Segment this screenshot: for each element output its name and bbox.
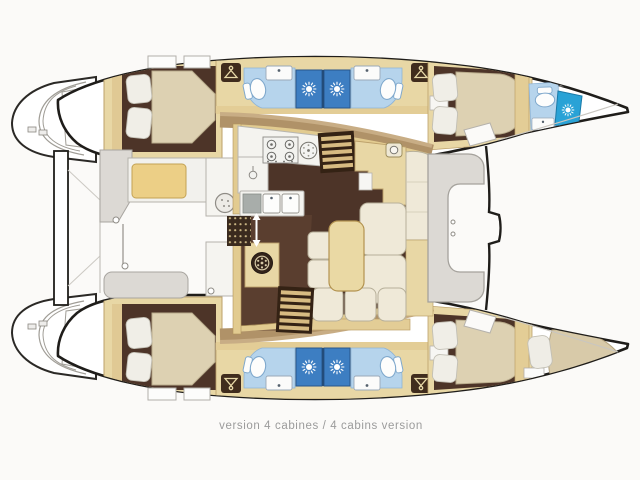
floor-plan-drawing: version 4 cabines / 4 cabins version [0,0,640,480]
saloon [227,124,436,334]
aft-crossbeam [54,151,68,305]
settee-cushion [360,203,406,255]
washing-machine-icon [245,243,279,287]
settee-cushion [312,288,343,321]
staircase-starboard [276,286,314,334]
dinette-table [329,221,364,291]
cockpit-bench [104,272,188,298]
bench-cushion [132,164,186,198]
staircase-port [318,131,357,173]
front-crossbeam [486,146,501,310]
settee-cushion [378,288,406,321]
forward-cockpit-seat [428,154,484,302]
settee-cushion [345,288,376,321]
cockpit-bench [100,150,132,222]
caption: version 4 cabines / 4 cabins version [219,420,423,432]
faucet-icon [249,171,257,179]
grill-icon [216,194,235,213]
catamaran-floor-plan: version 4 cabines / 4 cabins version [0,0,640,480]
cockpit [54,150,244,305]
